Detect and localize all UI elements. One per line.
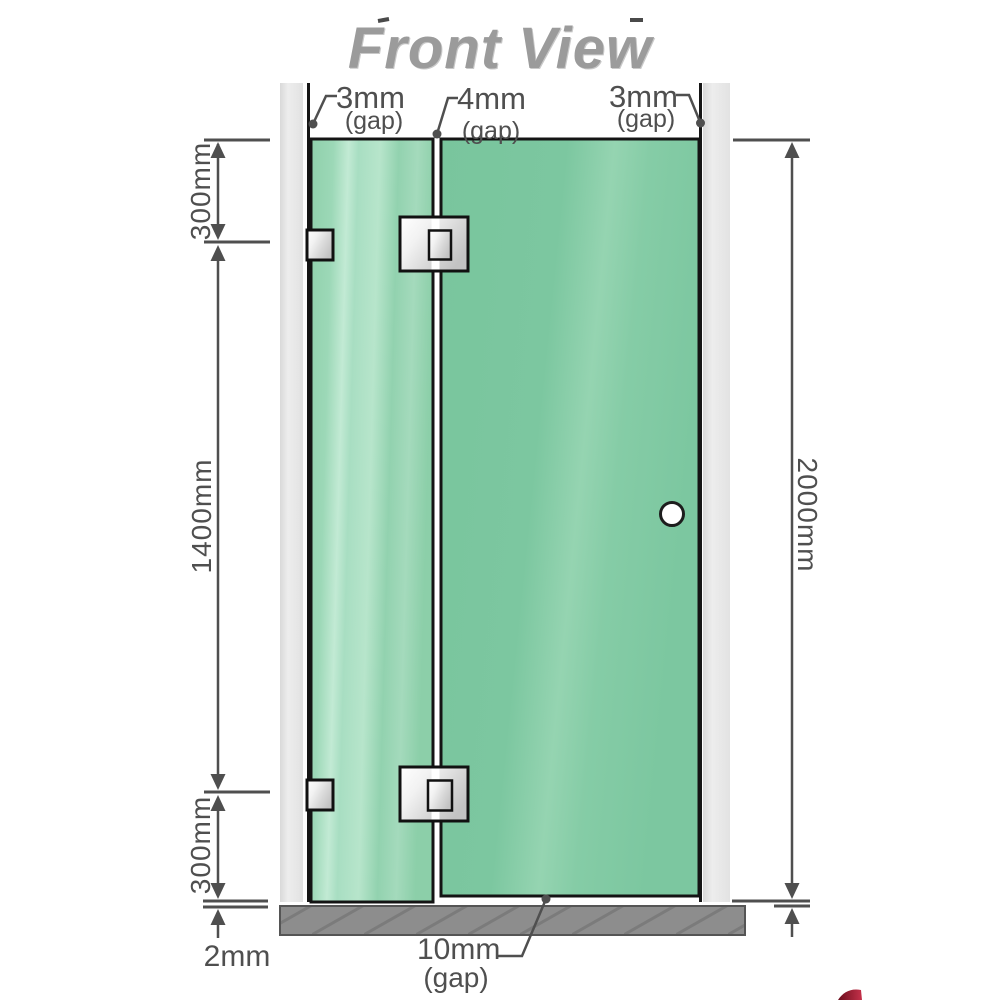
diagram-svg: 300mm 1400mm 300mm 2mm 2000mm <box>0 0 1000 1000</box>
hinge-knuckle <box>428 781 452 811</box>
dim-label-left-top: 300mm <box>185 142 216 240</box>
left-wall-post <box>280 83 303 902</box>
floor-base <box>280 906 745 935</box>
watermark-red-sliver <box>838 989 862 1000</box>
gap-label-top-right-unit: (gap) <box>617 105 675 133</box>
front-view-diagram: 300mm 1400mm 300mm 2mm 2000mm <box>0 0 1000 1000</box>
glass-hinge-top <box>400 217 468 271</box>
dim-label-left-middle: 1400mm <box>186 459 217 574</box>
gap-label-bottom-unit: (gap) <box>423 962 488 993</box>
page-title: Front View <box>0 20 1000 78</box>
gap-label-top-middle-value: 4mm <box>457 81 526 116</box>
glass-hinge-bottom <box>400 767 468 821</box>
wall-bracket-top <box>307 230 333 260</box>
gap-label-top-left-unit: (gap) <box>345 107 403 135</box>
gap-label-top-middle-unit: (gap) <box>462 117 520 145</box>
wall-bracket-bottom <box>307 780 333 810</box>
right-wall-post <box>703 83 730 902</box>
dim-label-left-bottom: 300mm <box>185 796 216 894</box>
dim-label-floor-offset: 2mm <box>204 940 271 973</box>
hinge-knuckle <box>429 231 451 260</box>
door-knob <box>661 503 684 526</box>
dim-label-right-full: 2000mm <box>792 458 823 573</box>
